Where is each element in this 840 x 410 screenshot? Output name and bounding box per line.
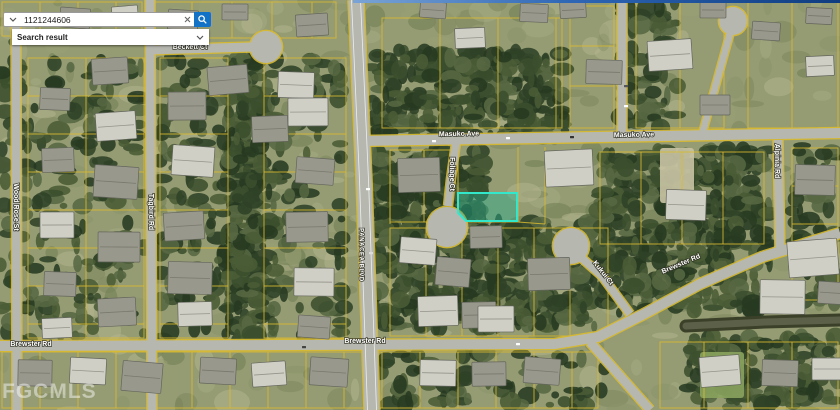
house-roof — [251, 115, 288, 142]
street-label: Foliage Ct — [448, 157, 455, 192]
house-roof — [171, 145, 215, 178]
search-bar — [3, 12, 212, 27]
house-roof — [168, 92, 206, 120]
search-icon — [198, 15, 207, 24]
house-roof — [288, 98, 328, 126]
house-roof — [419, 1, 446, 19]
house-roof — [97, 297, 136, 327]
vehicle — [624, 105, 628, 107]
house-roof — [222, 4, 248, 20]
house-roof — [523, 357, 561, 386]
vehicle — [302, 346, 306, 348]
house-roof — [295, 157, 335, 186]
house-roof — [762, 359, 799, 386]
street-label: PANACEA BLVD — [357, 228, 363, 282]
mls-watermark: FGCMLS — [2, 380, 97, 403]
house-roof — [207, 64, 249, 95]
house-roof — [665, 189, 706, 220]
house-roof — [420, 360, 457, 387]
house-roof — [91, 57, 129, 85]
house-roof — [98, 232, 140, 262]
house-roof — [40, 212, 74, 238]
vehicle — [366, 188, 370, 190]
vehicle — [624, 85, 628, 87]
house-roof — [760, 280, 805, 315]
house-roof — [251, 361, 287, 387]
house-roof — [399, 237, 437, 266]
aerial-map-canvas[interactable]: Beckett CtMasuko AveMasuko AveFoliage Ct… — [0, 0, 840, 410]
search-result-label: Search result — [17, 33, 68, 42]
search-type-chevron-icon[interactable] — [4, 13, 22, 26]
search-button[interactable] — [194, 12, 211, 27]
house-roof — [435, 257, 471, 288]
house-roof — [417, 295, 458, 326]
house-roof — [40, 87, 71, 110]
house-roof — [699, 355, 741, 388]
street-label: Tagbird Rd — [147, 194, 154, 230]
house-roof — [560, 1, 587, 18]
street-label: Wood Rose St — [12, 183, 19, 231]
house-roof — [795, 165, 836, 196]
house-roof — [472, 362, 506, 386]
street-label: Brewster Rd — [10, 341, 51, 348]
house-roof — [647, 39, 693, 72]
house-roof — [95, 111, 137, 142]
clear-search-icon[interactable] — [180, 13, 194, 26]
house-roof — [812, 358, 840, 380]
house-roof — [520, 3, 549, 22]
house-roof — [528, 257, 571, 290]
house-roof — [297, 315, 330, 339]
house-roof — [294, 268, 334, 296]
house-roof — [544, 149, 594, 187]
house-roof — [168, 261, 213, 294]
house-roof — [787, 238, 840, 278]
vehicle — [516, 343, 520, 345]
house-roof — [42, 317, 73, 338]
vehicle — [506, 137, 510, 139]
house-roof — [93, 165, 139, 200]
chevron-down-icon — [196, 35, 204, 40]
selected-parcel-highlight[interactable] — [458, 193, 517, 221]
house-roof — [397, 157, 440, 192]
house-roof — [751, 21, 780, 41]
house-roof — [278, 71, 315, 98]
house-roof — [586, 60, 623, 85]
house-roof — [700, 2, 726, 18]
vehicle — [432, 140, 436, 142]
search-result-dropdown[interactable]: Search result — [12, 29, 209, 45]
house-roof — [817, 281, 840, 305]
street-label: Alpinia Rd — [773, 144, 780, 179]
house-roof — [178, 302, 213, 327]
house-roof — [470, 226, 503, 249]
house-roof — [806, 7, 833, 24]
street-label: Brewster Rd — [344, 338, 385, 345]
house-roof — [806, 55, 835, 76]
vehicle — [369, 252, 373, 254]
cul-de-sac — [250, 31, 282, 63]
house-roof — [121, 360, 163, 393]
search-input[interactable] — [22, 13, 180, 26]
house-roof — [42, 147, 75, 172]
street-label: Masuko Ave — [614, 131, 655, 139]
house-roof — [199, 357, 236, 385]
vehicle — [570, 136, 574, 138]
house-roof — [286, 212, 329, 243]
house-roof — [163, 211, 205, 241]
house-roof — [455, 27, 486, 48]
street-label: Masuko Ave — [439, 130, 480, 138]
house-roof — [478, 306, 514, 332]
house-roof — [700, 95, 730, 115]
house-roof — [295, 13, 328, 37]
house-roof — [44, 271, 77, 296]
browser-edge-bar — [353, 0, 840, 3]
house-roof — [309, 357, 349, 388]
